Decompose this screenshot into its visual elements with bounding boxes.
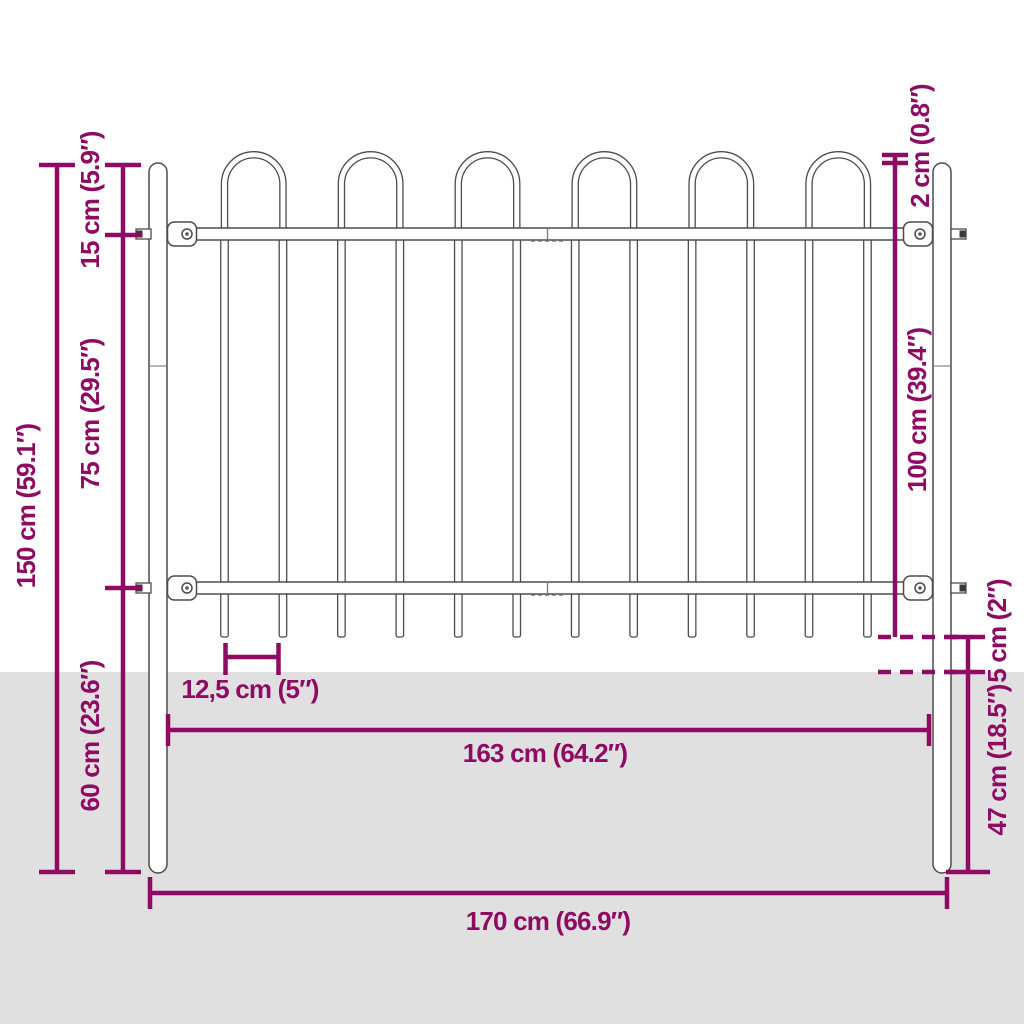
fence-bar [571, 232, 579, 637]
dim-lower-section-height: 60 cm (23.6″) [77, 661, 103, 812]
dim-panel-width: 163 cm (64.2″) [463, 740, 628, 766]
dim-hoop-above-post: 2 cm (0.8″) [907, 84, 933, 208]
fence-bar [455, 232, 463, 637]
hoop-outline [575, 155, 633, 238]
diagram-canvas [0, 0, 1024, 1024]
dim-post-below-ground: 47 cm (18.5″) [984, 685, 1010, 836]
clamp-bolt-center [918, 232, 922, 236]
fence-bar [864, 232, 872, 637]
fence-bar [513, 232, 521, 637]
fence-bar [805, 232, 813, 637]
fence-post-right [933, 163, 951, 873]
clamp-pin-cap [960, 231, 966, 238]
fence-bar [221, 232, 229, 637]
fence-bar [279, 232, 287, 637]
clamp-bolt-center [918, 586, 922, 590]
fence-bar [688, 232, 696, 637]
hoop-outline [225, 155, 283, 238]
dim-bar-spacing: 12,5 cm (5″) [181, 676, 318, 702]
fence-bar [338, 232, 346, 637]
dim-total-height: 150 cm (59.1″) [13, 424, 39, 589]
clamp-bolt-center [185, 232, 189, 236]
dim-rail-spacing: 75 cm (29.5″) [77, 339, 103, 490]
hoop-outline [809, 155, 867, 238]
dim-hoop-section-height: 15 cm (5.9″) [77, 131, 103, 268]
dim-spike-to-ground: 5 cm (2″) [984, 579, 1010, 683]
hoop-outline [341, 155, 399, 238]
top-rail [170, 228, 932, 240]
dim-total-width: 170 cm (66.9″) [466, 908, 631, 934]
fence-bar [747, 232, 755, 637]
fence-post-left [149, 163, 167, 873]
dim-panel-height: 100 cm (39.4″) [904, 328, 930, 493]
hoop-outline [692, 155, 750, 238]
clamp-bolt-center [185, 586, 189, 590]
fence-dimension-diagram: 150 cm (59.1″) 15 cm (5.9″) 75 cm (29.5″… [0, 0, 1024, 1024]
fence-bar [396, 232, 404, 637]
clamp-pin-cap [960, 585, 966, 592]
bottom-rail [170, 582, 932, 594]
fence-bar [630, 232, 638, 637]
hoop-outline [458, 155, 516, 238]
